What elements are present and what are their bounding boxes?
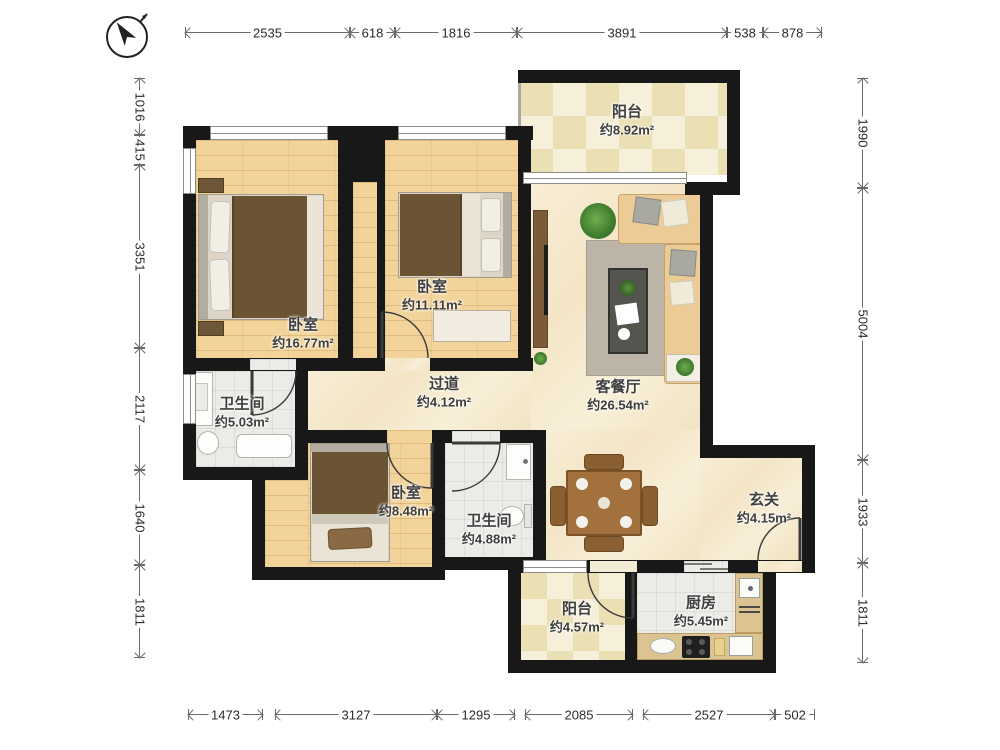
dimension-left: 2117 xyxy=(133,348,147,470)
dimension-left: 1016 xyxy=(133,78,147,135)
dimension-value: 1016 xyxy=(133,90,148,123)
dimension-value: 1295 xyxy=(459,708,494,723)
dimension-top: 3891 xyxy=(517,26,727,40)
doorway xyxy=(758,561,802,572)
dimension-value: 1933 xyxy=(856,495,871,528)
cutting-board xyxy=(714,638,725,656)
room-name: 卧室 xyxy=(379,485,433,504)
dimension-value: 1990 xyxy=(856,117,871,150)
dimension-value: 3351 xyxy=(133,240,148,273)
dimension-value: 2527 xyxy=(692,708,727,723)
dish-icon xyxy=(650,638,676,654)
dimension-top: 2535 xyxy=(185,26,350,40)
dining-chair xyxy=(550,486,566,526)
room-name: 玄关 xyxy=(737,492,791,511)
room-name: 卧室 xyxy=(402,279,462,298)
room-name: 卧室 xyxy=(272,317,333,336)
plate xyxy=(620,516,632,528)
bed-sheet xyxy=(312,514,388,524)
room-label-balcony-top: 阳台 约8.92m² xyxy=(600,104,654,139)
wall xyxy=(430,358,533,371)
dimension-value: 538 xyxy=(731,26,759,41)
dimension-value: 2535 xyxy=(250,26,285,41)
dimension-right: 5004 xyxy=(856,188,870,460)
wall xyxy=(338,140,385,182)
door-arc xyxy=(380,310,430,360)
pillow xyxy=(481,238,501,272)
dimension-value: 1811 xyxy=(133,596,148,628)
cup xyxy=(618,328,630,340)
bed-blanket xyxy=(232,196,307,318)
dimension-right: 1933 xyxy=(856,460,870,563)
dimension-value: 1473 xyxy=(208,708,243,723)
room-area: 约16.77m² xyxy=(272,335,333,351)
bed-headboard xyxy=(503,193,511,277)
dimension-left: 1640 xyxy=(133,470,147,565)
burner xyxy=(699,649,705,655)
floor-bedroom-small xyxy=(265,480,308,567)
room-area: 约8.48m² xyxy=(379,503,433,519)
wall xyxy=(252,567,445,580)
papers xyxy=(615,303,640,326)
dimension-top: 1816 xyxy=(395,26,517,40)
room-label-living: 客餐厅 约26.54m² xyxy=(587,379,648,414)
nightstand xyxy=(198,321,224,336)
vent-icon xyxy=(739,611,760,613)
dimension-value: 878 xyxy=(779,26,807,41)
room-name: 卫生间 xyxy=(215,396,269,415)
wall xyxy=(518,70,740,83)
wall xyxy=(252,467,265,580)
room-area: 约26.54m² xyxy=(587,397,648,413)
wall xyxy=(763,560,776,673)
dimension-value: 618 xyxy=(359,26,387,41)
sliding-door-icon xyxy=(684,563,712,565)
bed-sheet xyxy=(307,196,323,318)
dimension-bottom: 2085 xyxy=(525,708,633,722)
wall xyxy=(533,430,546,570)
vent-icon xyxy=(739,606,760,608)
room-label-bath-left: 卫生间 约5.03m² xyxy=(215,396,269,431)
dimension-value: 415 xyxy=(133,137,148,163)
bed-double xyxy=(198,194,324,320)
dimension-bottom: 3127 xyxy=(275,708,437,722)
plate xyxy=(576,516,588,528)
window xyxy=(398,126,506,140)
dining-chair xyxy=(642,486,658,526)
toilet-icon xyxy=(197,431,219,455)
dimension-left: 415 xyxy=(133,135,147,165)
dimension-bottom: 1473 xyxy=(188,708,263,722)
dimension-top: 618 xyxy=(350,26,395,40)
toilet-icon xyxy=(524,504,532,528)
bathtub xyxy=(236,434,292,458)
plate xyxy=(598,497,610,509)
plant-icon xyxy=(534,352,547,365)
wall xyxy=(518,126,531,366)
dining-chair xyxy=(584,536,624,552)
wall xyxy=(338,180,353,370)
dimension-top: 878 xyxy=(763,26,822,40)
plant-icon xyxy=(676,358,694,376)
room-label-bedroom-left: 卧室 约16.77m² xyxy=(272,317,333,352)
pillow xyxy=(209,201,231,254)
bed-blanket xyxy=(312,452,388,514)
room-area: 约4.12m² xyxy=(417,394,471,410)
faucet-icon xyxy=(748,586,753,591)
wall xyxy=(508,660,776,673)
wall xyxy=(295,430,387,443)
room-area: 约5.45m² xyxy=(674,613,728,629)
wall xyxy=(727,70,740,195)
sofa-pillow xyxy=(669,280,695,306)
dimension-value: 1816 xyxy=(439,26,474,41)
room-name: 过道 xyxy=(417,376,471,395)
room-area: 约5.03m² xyxy=(215,414,269,430)
dimension-value: 2085 xyxy=(562,708,597,723)
tv-icon xyxy=(544,245,548,315)
room-area: 约4.57m² xyxy=(550,619,604,635)
coffee-table xyxy=(608,268,648,354)
dimension-left: 1811 xyxy=(133,565,147,658)
bed-blanket xyxy=(400,194,462,276)
plant-icon xyxy=(580,203,616,239)
room-label-kitchen: 厨房 约5.45m² xyxy=(674,595,728,630)
room-label-bath-mid: 卫生间 约4.88m² xyxy=(462,513,516,548)
door-arc xyxy=(385,441,435,491)
sofa-pillow xyxy=(660,198,689,227)
room-name: 客餐厅 xyxy=(587,379,648,398)
dining-chair xyxy=(584,454,624,470)
burner xyxy=(686,639,692,645)
bed-double xyxy=(398,192,512,278)
faucet-icon xyxy=(523,459,528,464)
room-name: 厨房 xyxy=(674,595,728,614)
window xyxy=(183,148,196,194)
bed-sheet xyxy=(462,194,480,276)
window xyxy=(210,126,328,140)
plate xyxy=(620,478,632,490)
room-label-balcony-bottom: 阳台 约4.57m² xyxy=(550,601,604,636)
window xyxy=(523,560,587,573)
floor-niche xyxy=(353,182,377,370)
dimension-value: 1640 xyxy=(133,501,148,534)
dimension-right: 1990 xyxy=(856,78,870,188)
room-area: 约11.11m² xyxy=(402,297,462,313)
compass-north-icon xyxy=(102,8,156,62)
burner xyxy=(686,649,692,655)
room-area: 约8.92m² xyxy=(600,122,654,138)
burner xyxy=(699,639,705,645)
pillow xyxy=(327,527,372,550)
dimension-value: 3891 xyxy=(605,26,640,41)
dining-table xyxy=(566,470,642,536)
sofa-pillow xyxy=(669,249,697,277)
sliding-door-icon xyxy=(700,568,728,570)
room-name: 卫生间 xyxy=(462,513,516,532)
wall xyxy=(700,445,815,458)
dimension-bottom: 2527 xyxy=(643,708,775,722)
dimension-value: 2117 xyxy=(133,393,148,425)
plate xyxy=(576,478,588,490)
dimension-right: 1811 xyxy=(856,563,870,663)
dresser xyxy=(433,310,511,342)
room-label-bedroom-small: 卧室 约8.48m² xyxy=(379,485,433,520)
sofa-pillow xyxy=(632,196,661,225)
nightstand xyxy=(198,178,224,193)
room-area: 约4.88m² xyxy=(462,531,516,547)
window xyxy=(183,374,196,424)
room-name: 阳台 xyxy=(550,601,604,620)
dimension-value: 3127 xyxy=(339,708,374,723)
dimension-value: 1811 xyxy=(856,597,871,629)
window-sliding-door xyxy=(523,172,687,184)
dimension-value: 502 xyxy=(781,708,809,723)
wall xyxy=(183,467,308,480)
dimension-bottom: 1295 xyxy=(437,708,515,722)
door-arc xyxy=(450,441,502,493)
plant-icon xyxy=(620,280,636,296)
wall xyxy=(700,182,713,456)
sink-icon xyxy=(506,444,531,480)
wall xyxy=(508,560,521,673)
pillow xyxy=(481,198,501,232)
room-area: 约4.15m² xyxy=(737,510,791,526)
bed-headboard xyxy=(311,444,389,452)
room-label-bedroom-mid: 卧室 约11.11m² xyxy=(402,279,462,314)
dimension-top: 538 xyxy=(727,26,763,40)
stove-icon xyxy=(682,636,710,658)
pillow xyxy=(209,259,231,312)
room-label-hallway: 过道 约4.12m² xyxy=(417,376,471,411)
dimension-bottom: 502 xyxy=(775,708,815,722)
room-label-entry: 玄关 约4.15m² xyxy=(737,492,791,527)
room-name: 阳台 xyxy=(600,104,654,123)
sink-icon xyxy=(739,578,760,598)
sink-icon xyxy=(729,636,753,656)
dimension-left: 3351 xyxy=(133,165,147,348)
floor-plan: 阳台 约8.92m² 卧室 约16.77m² 卧室 约11.11m² 卫生间 约… xyxy=(0,0,1000,750)
bed-headboard xyxy=(199,195,208,319)
dimension-value: 5004 xyxy=(856,308,871,341)
doorway-sliding xyxy=(684,561,728,572)
